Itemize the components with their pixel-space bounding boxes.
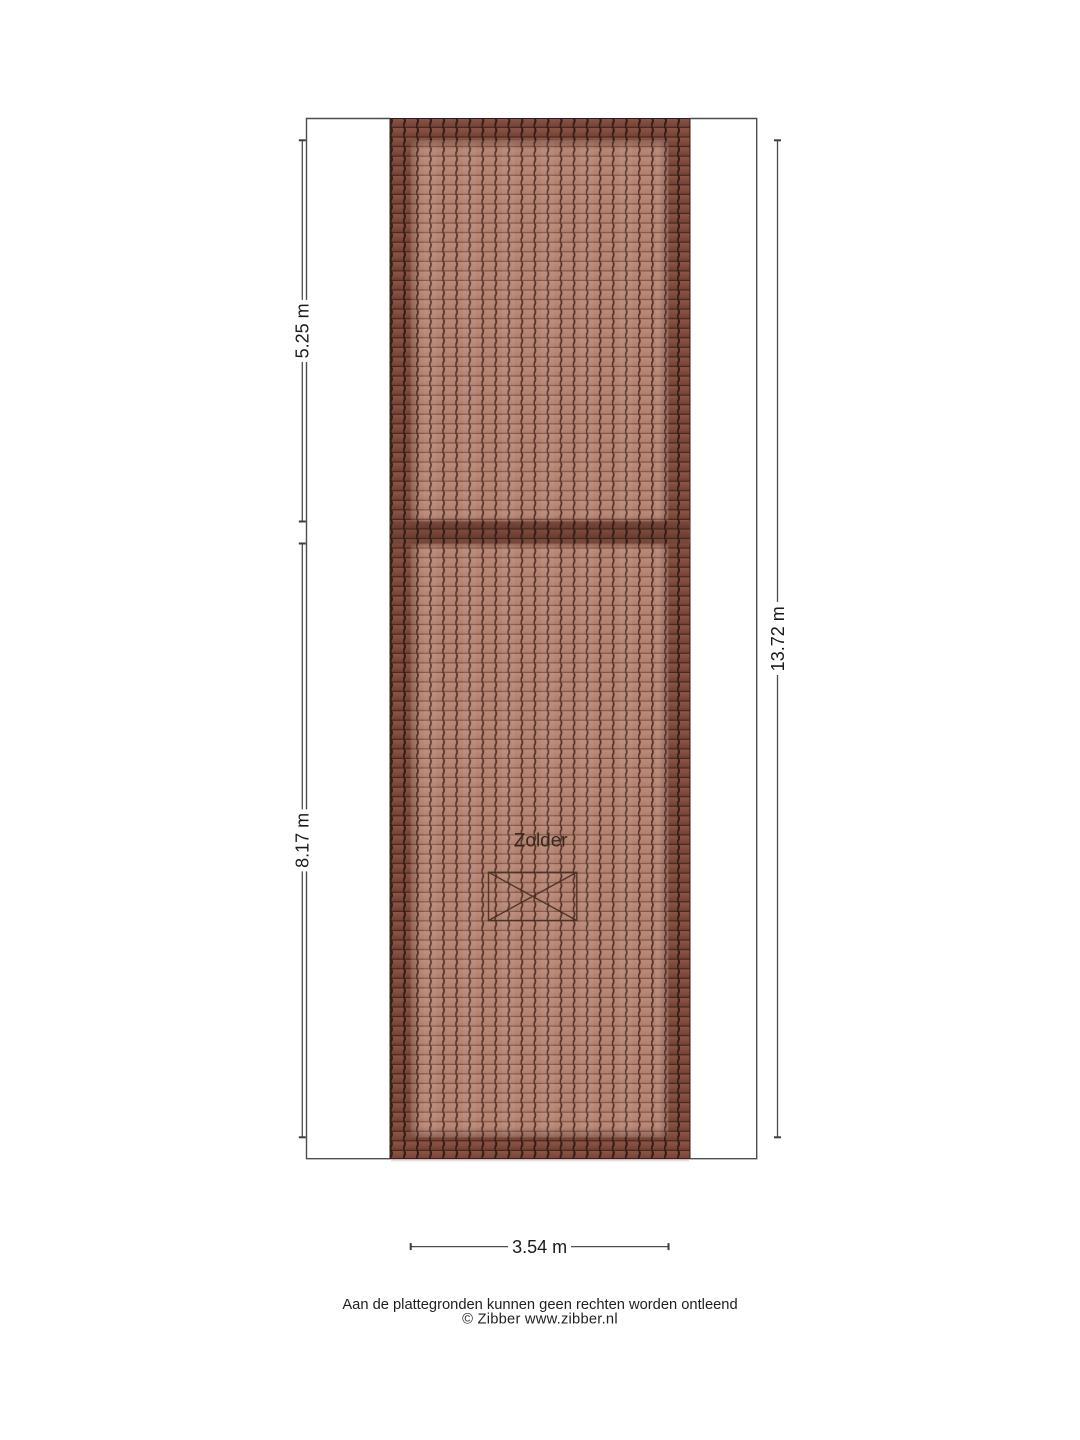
svg-text:© Zibber www.zibber.nl: © Zibber www.zibber.nl [462,1312,618,1328]
svg-text:Zolder: Zolder [514,830,569,851]
svg-text:Aan de plattegronden kunnen ge: Aan de plattegronden kunnen geen rechten… [342,1297,737,1313]
svg-text:3.54 m: 3.54 m [512,1237,567,1257]
svg-text:8.17 m: 8.17 m [293,813,313,868]
svg-text:5.25 m: 5.25 m [293,303,313,358]
svg-text:13.72 m: 13.72 m [768,606,788,671]
